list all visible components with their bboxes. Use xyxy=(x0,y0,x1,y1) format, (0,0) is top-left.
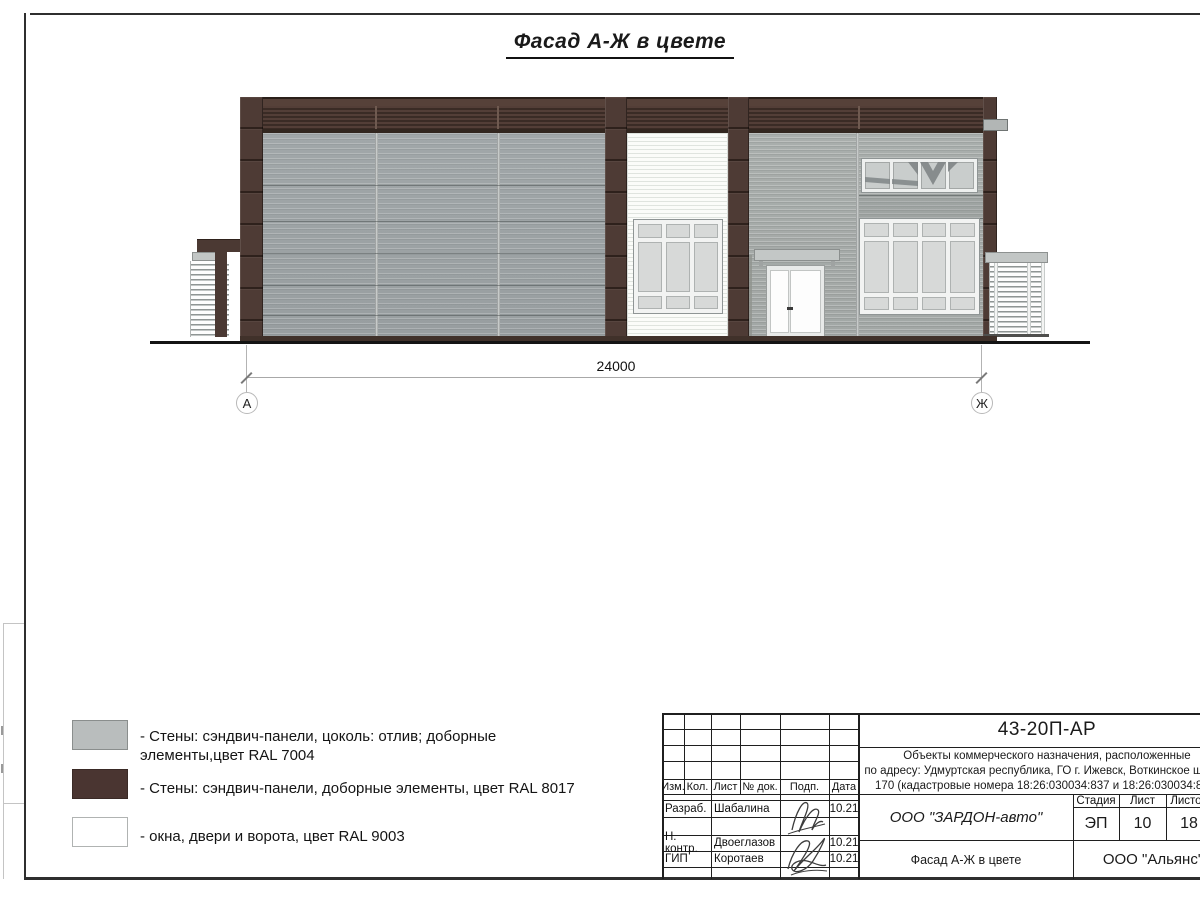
band-seam xyxy=(375,106,377,129)
tb-role: Н. контр. xyxy=(665,835,712,851)
door-leaf xyxy=(770,270,789,333)
tb-sheet-label: Лист xyxy=(1119,794,1166,807)
tb-desc-line: Объекты коммерческого назначения, распол… xyxy=(859,749,1200,764)
window-pane xyxy=(864,297,889,310)
tb-col-podp: Подп. xyxy=(780,779,829,794)
tb-name: Коротаев xyxy=(714,851,779,867)
tb-name: Шабалина xyxy=(714,800,779,817)
tb-date: 10.21 xyxy=(829,852,859,866)
window-pane xyxy=(893,241,918,293)
tb-grid-line xyxy=(662,729,859,730)
window-pane xyxy=(864,223,889,237)
band-seam xyxy=(497,106,499,129)
page-title-wrap: Фасад А-Ж в цвете xyxy=(300,27,940,61)
frame-left-line xyxy=(24,13,26,879)
extension-line xyxy=(981,345,982,392)
tb-col-data: Дата xyxy=(829,779,859,794)
tb-name: Двоеглазов xyxy=(714,835,779,851)
legend-line: элементы,цвет RAL 7004 xyxy=(140,746,520,765)
wall-section-left xyxy=(263,133,605,336)
window-pane xyxy=(638,224,662,238)
window-pane xyxy=(666,224,690,238)
tb-grid-line xyxy=(662,817,859,818)
tb-desc-line: по адресу: Удмуртская республика, ГО г. … xyxy=(859,764,1200,779)
tb-col-dok: № док. xyxy=(740,779,780,794)
tb-col-kol: Кол. xyxy=(684,779,711,794)
downspout xyxy=(749,255,752,336)
legend-item-label: - Стены: сэндвич-панели, цоколь: отлив; … xyxy=(140,727,520,765)
tb-organization: ООО "ЗАРДОН-авто" xyxy=(860,795,1072,839)
window-reflection xyxy=(865,162,974,189)
panel-seam xyxy=(263,221,605,222)
tb-role: Разраб. xyxy=(665,800,710,817)
showroom-window xyxy=(859,218,980,315)
tb-role: ГИП xyxy=(665,851,710,867)
extension-line xyxy=(246,345,247,392)
fence-post xyxy=(994,263,998,336)
tb-col-list: Лист xyxy=(711,779,740,794)
margin-text-mark xyxy=(1,726,3,735)
canopy-bracket xyxy=(759,261,763,267)
window-pane xyxy=(950,223,975,237)
panel-seam xyxy=(263,315,605,316)
window-pane xyxy=(922,241,947,293)
drawing-sheet: Фасад А-Ж в цвете xyxy=(0,0,1200,900)
fence-post xyxy=(1041,263,1045,336)
tb-company: ООО "Альянс" xyxy=(1074,841,1200,878)
panel-seam xyxy=(263,285,605,286)
tb-grid-line xyxy=(662,794,859,795)
tb-stage-label: Стадия xyxy=(1073,794,1119,807)
panel-seam xyxy=(263,185,605,186)
canopy-bracket xyxy=(831,261,835,267)
window-pane xyxy=(864,241,889,293)
window-pane xyxy=(694,224,718,238)
ground-line xyxy=(150,341,1090,344)
window-pane xyxy=(694,296,718,309)
tb-grid-line xyxy=(662,761,859,762)
tb-grid-line xyxy=(859,747,1200,748)
window-pane xyxy=(950,241,975,293)
legend-line: - Стены: сэндвич-панели, цоколь: отлив; … xyxy=(140,727,520,746)
tb-grid-line xyxy=(662,867,859,868)
facade-column xyxy=(728,97,749,337)
dimension-label: 24000 xyxy=(546,358,686,374)
dimension-line xyxy=(246,377,982,378)
tb-doc-number: 43-20П-АР xyxy=(859,715,1200,745)
tb-sheets-total: 18 xyxy=(1166,807,1200,840)
axis-mark-zh: Ж xyxy=(971,392,993,414)
window-pane xyxy=(893,223,918,237)
margin-divider-line xyxy=(4,803,24,804)
tb-date: 10.21 xyxy=(829,836,859,850)
facade-column xyxy=(605,97,627,337)
tb-date: 10.21 xyxy=(829,800,859,817)
panel-band xyxy=(858,195,983,219)
margin-divider-line xyxy=(4,623,24,624)
tb-sheets-label: Листов xyxy=(1166,794,1200,807)
window-pane xyxy=(694,242,718,292)
door-handle xyxy=(787,307,793,310)
window-pane xyxy=(638,242,662,292)
signature-gip xyxy=(783,831,829,877)
legend-swatch-brown xyxy=(72,769,128,799)
tb-grid-line xyxy=(780,713,781,879)
tb-drawing-name: Фасад А-Ж в цвете xyxy=(860,841,1072,878)
margin-column-line xyxy=(3,623,4,879)
legend-swatch-white xyxy=(72,817,128,847)
gate-window xyxy=(633,219,723,314)
window-pane xyxy=(893,297,918,310)
window-pane xyxy=(950,297,975,310)
clerestory-window xyxy=(861,158,978,193)
entrance-door xyxy=(766,265,825,337)
facade-column xyxy=(240,97,263,337)
tb-desc-line: 170 (кадастровые номера 18:26:030034:837… xyxy=(859,779,1200,794)
window-pane xyxy=(666,242,690,292)
axis-mark-a: А xyxy=(236,392,258,414)
window-pane xyxy=(638,296,662,309)
tb-col-izm: Изм. xyxy=(662,779,684,794)
panel-seam xyxy=(497,133,500,336)
frame-top-line xyxy=(30,13,1200,15)
parapet-cap xyxy=(983,119,1008,131)
page-title: Фасад А-Ж в цвете xyxy=(506,30,734,59)
panel-seam xyxy=(263,253,605,254)
window-pane xyxy=(922,297,947,310)
tb-grid-line xyxy=(662,745,859,746)
window-pane xyxy=(922,223,947,237)
left-fence-post xyxy=(215,252,227,337)
band-seam xyxy=(858,106,860,129)
legend-item-label: - Стены: сэндвич-панели, доборные элемен… xyxy=(140,779,640,798)
tb-sheet-number: 10 xyxy=(1119,807,1166,840)
fence-post xyxy=(1027,263,1031,336)
tb-border xyxy=(662,713,664,879)
panel-seam xyxy=(375,133,378,336)
legend-swatch-gray xyxy=(72,720,128,750)
right-fence-cap xyxy=(985,252,1048,263)
entrance-canopy xyxy=(754,249,840,261)
panel-seam xyxy=(858,195,983,196)
window-pane xyxy=(666,296,690,309)
door-leaf xyxy=(790,270,821,333)
tb-stage-value: ЭП xyxy=(1073,807,1119,840)
legend-item-label: - окна, двери и ворота, цвет RAL 9003 xyxy=(140,827,640,846)
tb-project-description: Объекты коммерческого назначения, распол… xyxy=(859,749,1200,794)
margin-text-mark xyxy=(1,764,3,773)
